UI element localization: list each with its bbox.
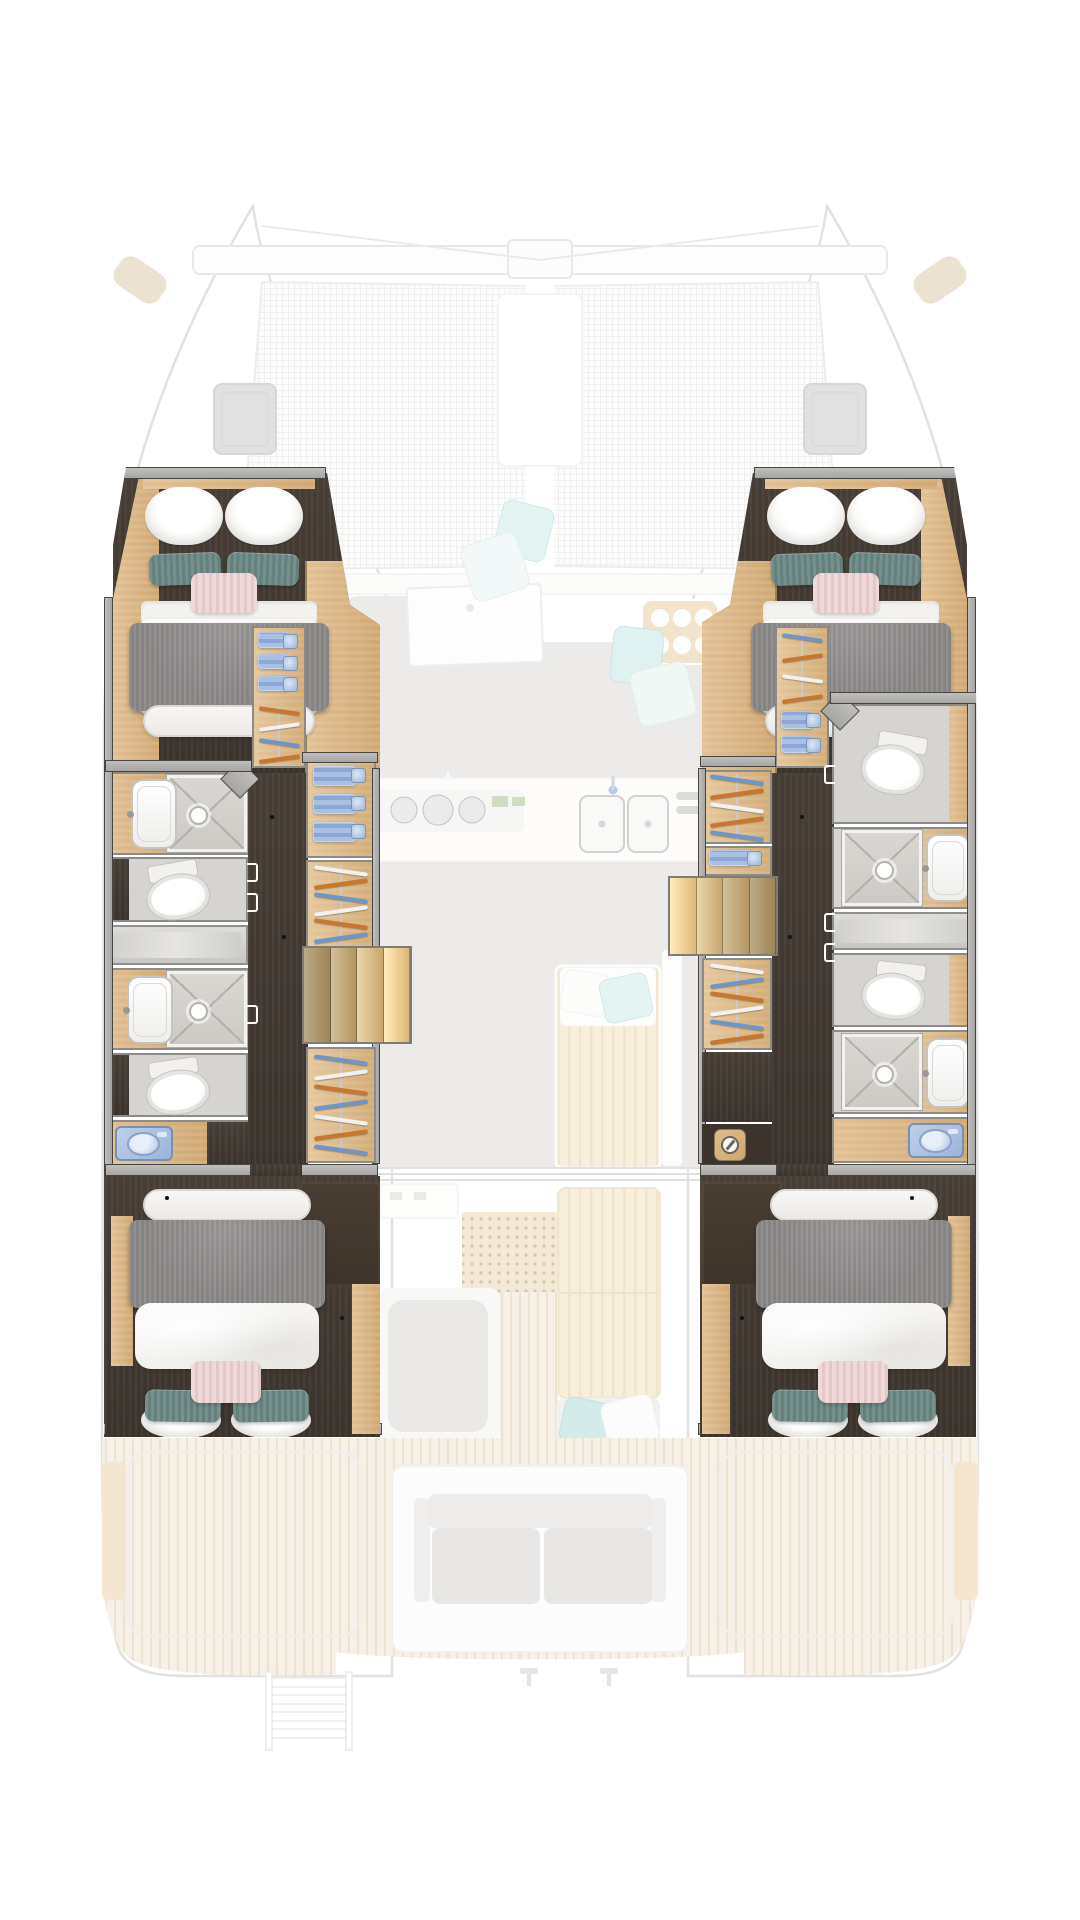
locker-floor [702, 1052, 772, 1122]
companionway-stairs [668, 876, 778, 956]
folded-towel [781, 736, 813, 753]
hanger-rod [777, 630, 827, 706]
door-handle [247, 863, 258, 882]
white-hanger [314, 1069, 368, 1080]
pillow [145, 487, 223, 545]
blue-hanger [314, 932, 368, 943]
vent-grille [462, 1212, 558, 1296]
starboard-corridor-floor [772, 760, 834, 1180]
shower-tray [842, 830, 922, 906]
glass-partition [105, 925, 248, 965]
port-aft-toilet-room [105, 1053, 248, 1117]
bulkhead-frame [700, 1164, 976, 1176]
shower-drain [875, 861, 894, 880]
white-hanger [710, 1006, 764, 1017]
bulkhead-frame [302, 752, 378, 763]
port-aft-shower-room [105, 968, 248, 1050]
starboard-midship-wardrobe [702, 770, 772, 844]
pillow-pink [813, 573, 879, 613]
towel-shelf [704, 848, 770, 874]
washer-unit [908, 1123, 964, 1158]
starboard-laundry-cubby [832, 1117, 975, 1163]
green-knob [492, 796, 508, 807]
starboard-forward-toilet-room [832, 704, 975, 824]
shower-drain [189, 1002, 208, 1021]
bed-foot-bench [143, 1189, 311, 1221]
starboard-aft-toilet-room [832, 953, 975, 1027]
vanity-sink [131, 779, 177, 849]
galley [336, 776, 746, 862]
white-hanger [710, 963, 764, 974]
pillow [767, 487, 845, 545]
folded-towel [258, 676, 290, 691]
towel-shelf [308, 760, 374, 856]
floorplan-canvas [0, 0, 1080, 1920]
bulkhead-frame [120, 467, 326, 479]
port-aft-cabin [105, 1176, 380, 1437]
orange-hanger [258, 706, 299, 716]
hanger-rod [308, 1049, 374, 1161]
white-hanger [258, 722, 299, 732]
cockpit-sofa [392, 1466, 688, 1652]
toilet [851, 726, 941, 803]
bed-blanket [129, 1220, 325, 1308]
blue-hanger [314, 1144, 368, 1155]
starboard-aft-cabin [700, 1176, 976, 1437]
door-gap [250, 1164, 302, 1176]
bow-crossbeam [193, 226, 887, 278]
orange-hanger [710, 991, 764, 1002]
blue-hanger [314, 892, 368, 903]
orange-hanger [710, 816, 764, 827]
starboard-side-board [954, 1462, 978, 1600]
folded-towel [313, 766, 355, 786]
blue-hanger [314, 1054, 368, 1065]
pillow-pink [191, 1361, 261, 1403]
orange-hanger [258, 754, 299, 764]
bulkhead-frame [754, 467, 960, 479]
bulkhead-frame [830, 692, 977, 704]
pillow [225, 487, 303, 545]
washer-unit [115, 1126, 173, 1161]
companionway-stairs [302, 946, 412, 1044]
hanger-rod [704, 772, 770, 842]
port-side-board [102, 1462, 126, 1600]
orange-hanger [314, 1084, 368, 1095]
partition [662, 950, 682, 1166]
toilet [853, 957, 939, 1025]
hanger-rod [704, 960, 770, 1048]
blue-hanger [258, 738, 299, 748]
orange-hanger [314, 1129, 368, 1140]
bed-duvet [762, 1303, 946, 1369]
starboard-towel-cubby [702, 846, 772, 876]
blue-hanger [314, 1099, 368, 1110]
aft-cockpit [102, 1438, 978, 1750]
folded-towel [709, 850, 751, 866]
toilet [133, 1053, 218, 1119]
door-handle [824, 765, 835, 784]
utility-cubby [702, 1124, 772, 1164]
starboard-mid-shower-room [832, 827, 975, 909]
appliance-dial-icon [714, 1129, 746, 1161]
white-hanger [781, 674, 822, 684]
blue-hanger [710, 977, 764, 988]
stair-tread [670, 878, 697, 954]
folded-towel [781, 711, 813, 728]
starboard-forward-wardrobe [775, 626, 829, 768]
stair-tread [331, 948, 358, 1042]
blue-hanger [710, 830, 764, 841]
port-midship-towel-shelf [306, 758, 376, 858]
folded-towel [313, 794, 355, 814]
white-hanger [710, 802, 764, 813]
orange-hanger [710, 788, 764, 799]
door-gap [776, 1164, 828, 1176]
shower-tray [842, 1034, 922, 1110]
starboard-aft-wardrobe [702, 958, 772, 1050]
shower-tray [167, 971, 247, 1047]
port-bow-hatch [214, 384, 276, 454]
aft-counter [380, 1184, 458, 1218]
orange-hanger [710, 1034, 764, 1045]
stair-tread [697, 878, 724, 954]
folded-towel [258, 632, 290, 647]
bulkhead-frame [105, 760, 252, 772]
blue-hanger [710, 1020, 764, 1031]
bed-foot-bench [770, 1189, 938, 1221]
port-forward-toilet-room [105, 857, 248, 922]
orange-hanger [781, 654, 822, 664]
pillow [847, 487, 925, 545]
towel-shelf [254, 628, 304, 702]
shower-drain [189, 806, 208, 825]
port-forward-wardrobe [252, 626, 306, 768]
glass-partition [832, 912, 975, 950]
port-laundry-cubby [105, 1120, 248, 1166]
stair-tread [750, 878, 777, 954]
towel-shelf [777, 708, 827, 764]
green-knob [512, 797, 525, 806]
saloon-daybed [556, 966, 660, 1168]
orange-hanger [314, 919, 368, 930]
starboard-aft-shower-room [832, 1030, 975, 1114]
white-hanger [314, 905, 368, 916]
bulkhead-frame [700, 756, 776, 767]
pillow-pink [818, 1361, 888, 1403]
white-hanger [314, 865, 368, 876]
bulkhead-frame [105, 1164, 378, 1176]
door-handle [824, 913, 835, 932]
anchor-channel [498, 294, 582, 466]
cleats [520, 1668, 618, 1686]
port-midship-wardrobe [306, 860, 376, 948]
stair-tread [384, 948, 411, 1042]
hanger-rod [308, 862, 374, 946]
hanger-rod [254, 704, 304, 764]
bed-blanket [756, 1220, 952, 1308]
port-aft-wardrobe [306, 1047, 376, 1163]
door-handle [247, 1005, 258, 1024]
toilet [133, 855, 220, 926]
pillow-pink [191, 573, 257, 613]
transom-ladder [266, 1672, 352, 1750]
vanity-sink [926, 834, 970, 902]
port-corridor-floor [248, 760, 308, 1180]
shower-drain [875, 1065, 894, 1084]
bed-duvet [135, 1303, 319, 1369]
folded-towel [313, 822, 355, 842]
folded-towel [258, 654, 290, 669]
port-forward-shower-room [105, 772, 248, 855]
stair-tread [357, 948, 384, 1042]
orange-hanger [314, 878, 368, 889]
door-handle [824, 943, 835, 962]
blue-hanger [781, 633, 822, 643]
starboard-bow-hatch [804, 384, 866, 454]
door-handle [247, 893, 258, 912]
vanity-sink [926, 1038, 970, 1108]
stair-tread [723, 878, 750, 954]
stair-tread [304, 948, 331, 1042]
vanity-sink [127, 976, 173, 1044]
orange-hanger [781, 694, 822, 704]
white-hanger [314, 1114, 368, 1125]
blue-hanger [710, 774, 764, 785]
